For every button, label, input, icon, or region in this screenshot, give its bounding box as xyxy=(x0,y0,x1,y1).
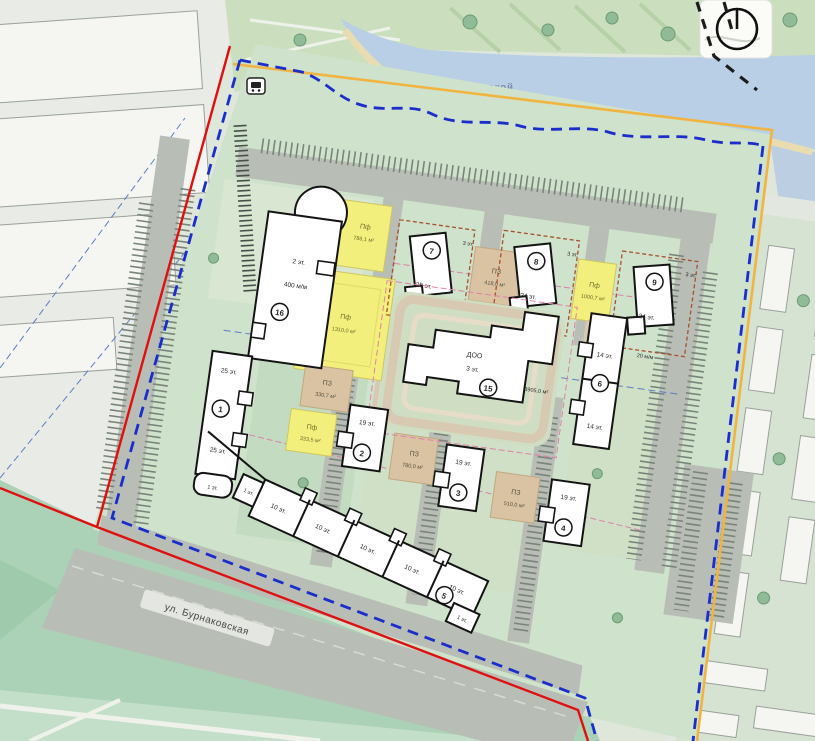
zone-pz2: ПЗ 330,7 м² xyxy=(300,364,353,412)
building-16-number: 16 xyxy=(275,308,286,318)
north-compass xyxy=(700,0,772,58)
zone-pz2-code: ПЗ xyxy=(322,380,332,388)
zone-pf4: Пф 333,5 м² xyxy=(286,408,337,456)
zone-pz3: ПЗ 780,0 м² xyxy=(389,433,439,485)
site-plan-map: оз. Бурнаковской низины xyxy=(0,0,815,741)
zone-pz4-code: ПЗ xyxy=(511,489,521,497)
zone-pz3-code: ПЗ xyxy=(409,450,419,458)
zone-pz4: ПЗ 510,0 м² xyxy=(490,472,540,524)
building-15-number: 15 xyxy=(483,384,494,394)
zone-pz1-code: ПЗ xyxy=(491,268,501,276)
bus-stop-icon xyxy=(247,78,265,94)
